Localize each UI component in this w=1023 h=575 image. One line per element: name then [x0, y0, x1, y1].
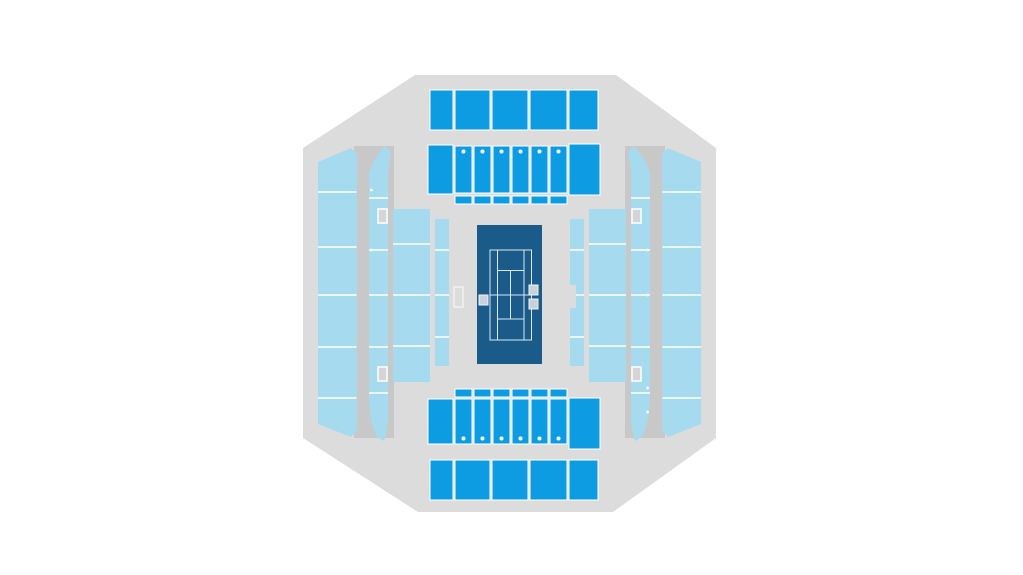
seat-block-south-upper-2[interactable]	[455, 460, 490, 500]
seat-block-south-rail-2[interactable]	[474, 389, 491, 397]
section-west-courtside-inner[interactable]	[435, 219, 449, 366]
seat-block-south-rail-1[interactable]	[455, 389, 472, 397]
entrance-east-north	[632, 209, 641, 223]
aisle-dot	[370, 249, 373, 252]
seat-block-south-lower-e[interactable]	[569, 398, 600, 449]
section-east-upper[interactable]	[662, 148, 701, 437]
section-south-upper[interactable]	[430, 460, 598, 500]
vomitory-west-gap	[454, 287, 463, 307]
seat-block-north-rail-3[interactable]	[493, 196, 510, 204]
section-west-courtside-inner-shape[interactable]	[435, 219, 449, 366]
seat-block-south-upper-1[interactable]	[430, 460, 453, 500]
seat-block-north-upper-3[interactable]	[492, 90, 528, 130]
stadium-map	[0, 0, 1023, 575]
aisle-dot	[370, 189, 373, 192]
seat-map-canvas	[0, 0, 1023, 575]
aisle-dot	[646, 411, 649, 414]
seat-block-south-upper-5[interactable]	[569, 460, 598, 500]
seat-block-north-rail-4[interactable]	[512, 196, 529, 204]
seat-block-north-lower-w[interactable]	[428, 145, 453, 194]
section-east-courtside-outer[interactable]	[589, 209, 626, 382]
aisle-dot	[646, 249, 649, 252]
seat-block-north-rail-5[interactable]	[531, 196, 548, 204]
seat-block-north-rail-1[interactable]	[455, 196, 472, 204]
aisle-dot	[646, 387, 649, 390]
seat-block-north-upper-4[interactable]	[530, 90, 567, 130]
seat-block-south-upper-4[interactable]	[530, 460, 567, 500]
section-east-courtside-inner[interactable]	[568, 219, 584, 366]
court-marker-east-2	[529, 299, 538, 309]
entrance-west-south	[378, 367, 387, 381]
seat-block-north-upper-5[interactable]	[569, 90, 598, 130]
court-marker-west	[479, 295, 488, 305]
section-west-upper[interactable]	[318, 148, 357, 437]
seat-block-south-rail-5[interactable]	[531, 389, 548, 397]
seat-block-south-rail-3[interactable]	[493, 389, 510, 397]
seat-block-south-rail-6[interactable]	[550, 389, 567, 397]
seat-block-north-lower-e[interactable]	[569, 144, 600, 195]
seat-block-south-rail-4[interactable]	[512, 389, 529, 397]
court-marker-east-1	[529, 285, 538, 295]
aisle-dot	[646, 294, 649, 297]
tennis-court	[477, 225, 542, 364]
seat-block-north-upper-2[interactable]	[455, 90, 490, 130]
section-west-courtside-outer[interactable]	[393, 209, 430, 382]
section-north-upper[interactable]	[430, 90, 598, 130]
seat-block-south-upper-3[interactable]	[492, 460, 528, 500]
seat-block-north-upper-1[interactable]	[430, 90, 453, 130]
seat-block-north-rail-6[interactable]	[550, 196, 567, 204]
section-east-lower-shape[interactable]	[628, 146, 650, 441]
seat-block-south-lower-w[interactable]	[428, 399, 453, 444]
vomitory-east-gap	[568, 285, 576, 308]
entrance-east-south	[632, 367, 641, 381]
entrance-west-north	[378, 209, 387, 223]
seat-block-north-rail-2[interactable]	[474, 196, 491, 204]
